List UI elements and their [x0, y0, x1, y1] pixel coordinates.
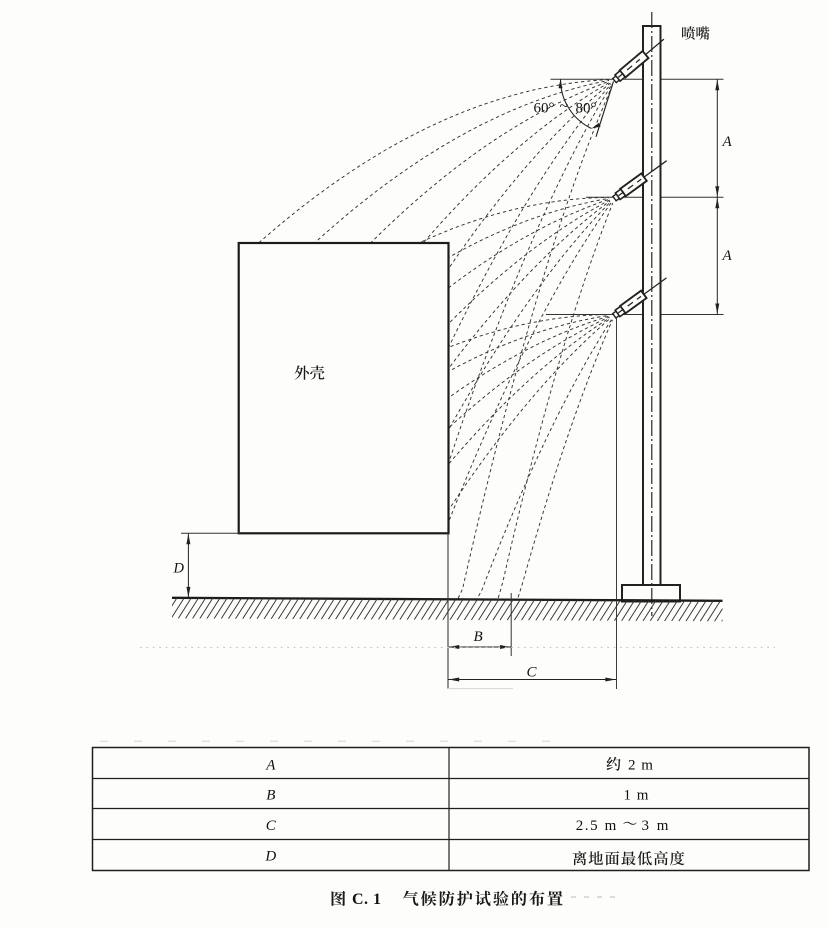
svg-text:2 m: 2 m: [628, 758, 654, 774]
svg-text:60°: 60°: [534, 101, 555, 117]
svg-text:B: B: [266, 788, 275, 804]
svg-text:2.5 m: 2.5 m: [576, 818, 618, 834]
svg-text:A: A: [722, 134, 733, 150]
svg-text:80°: 80°: [576, 101, 597, 117]
svg-text:A: A: [265, 758, 276, 774]
svg-text:C: C: [527, 665, 538, 681]
svg-text:D: D: [173, 560, 185, 576]
svg-text:A: A: [722, 248, 733, 264]
svg-text:1 m: 1 m: [624, 788, 650, 804]
svg-text:C: C: [266, 818, 277, 834]
svg-text:C. 1: C. 1: [352, 891, 382, 908]
svg-text:B: B: [474, 629, 483, 645]
svg-text:D: D: [264, 849, 276, 865]
svg-text:3 m: 3 m: [642, 818, 671, 834]
svg-text:~: ~: [560, 98, 569, 115]
